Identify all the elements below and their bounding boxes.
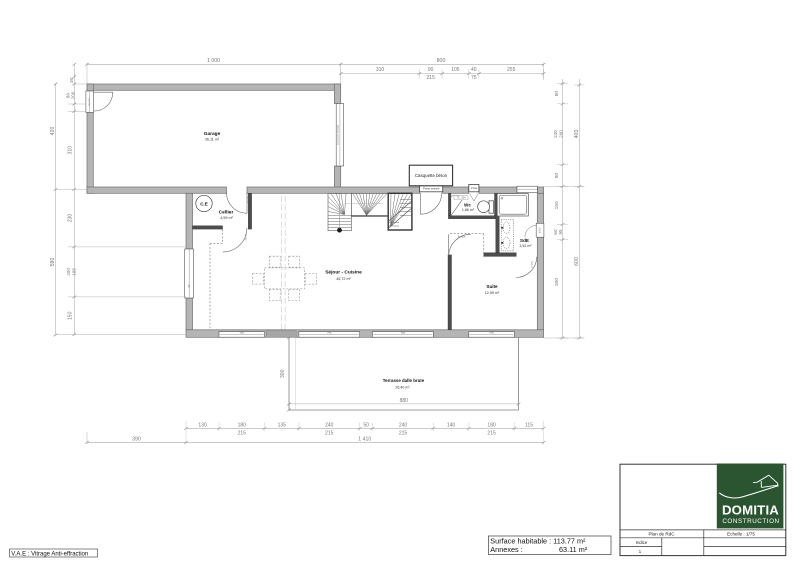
svg-text:600: 600 — [574, 257, 580, 266]
svg-text:140: 140 — [447, 422, 456, 428]
svg-text:Cellier: Cellier — [219, 210, 234, 216]
svg-text:310: 310 — [68, 146, 74, 155]
svg-text:105: 105 — [451, 67, 460, 73]
svg-text:Surface habitable : 113.77 m²: Surface habitable : 113.77 m² — [490, 536, 586, 545]
svg-text:80: 80 — [554, 91, 560, 97]
svg-text:Garage: Garage — [204, 131, 221, 137]
svg-text:V.A.E: V.A.E — [471, 186, 478, 190]
svg-text:45,72 m²: 45,72 m² — [336, 277, 351, 281]
svg-text:300: 300 — [280, 369, 286, 378]
svg-text:1,86 m²: 1,86 m² — [462, 208, 475, 212]
svg-text:12,59 m²: 12,59 m² — [485, 291, 500, 295]
svg-text:420: 420 — [50, 127, 56, 136]
svg-text:215: 215 — [238, 430, 247, 436]
svg-text:215: 215 — [487, 430, 496, 436]
svg-text:215: 215 — [325, 430, 334, 436]
svg-text:Terrasse dalle brute: Terrasse dalle brute — [383, 378, 425, 383]
svg-text:70 : 204: 70 : 204 — [456, 196, 466, 199]
svg-text:80x200: 80x200 — [89, 98, 91, 106]
svg-text:1 410: 1 410 — [358, 436, 371, 442]
svg-text:50: 50 — [363, 422, 369, 428]
svg-text:300: 300 — [554, 278, 560, 286]
svg-text:3,52 m²: 3,52 m² — [519, 244, 532, 248]
svg-text:Sectionnelle 240x200: Sectionnelle 240x200 — [337, 124, 340, 145]
svg-text:Annexes :: Annexes : — [490, 545, 522, 554]
svg-text:150: 150 — [554, 201, 560, 209]
svg-text:800: 800 — [437, 58, 446, 64]
svg-text:Suite: Suite — [486, 284, 498, 289]
svg-text:36,11 m²: 36,11 m² — [205, 138, 220, 142]
svg-text:1 000: 1 000 — [207, 58, 220, 64]
svg-text:180: 180 — [487, 422, 496, 428]
svg-text:Porte entrée: Porte entrée — [423, 186, 440, 190]
svg-text:SdE: SdE — [520, 238, 529, 243]
svg-text:VAE: VAE — [489, 332, 494, 335]
svg-text:30: 30 — [69, 77, 75, 83]
svg-text:215: 215 — [427, 75, 436, 81]
svg-text:80: 80 — [65, 93, 70, 99]
svg-text:VAE: VAE — [401, 332, 406, 335]
svg-text:580: 580 — [50, 258, 56, 267]
svg-text:255: 255 — [507, 67, 516, 73]
svg-text:75: 75 — [471, 75, 477, 81]
svg-text:880: 880 — [400, 398, 409, 404]
svg-text:VAE: VAE — [239, 332, 244, 335]
svg-text:4,59 m²: 4,59 m² — [220, 216, 234, 220]
svg-text:240: 240 — [325, 422, 334, 428]
svg-text:95: 95 — [558, 229, 563, 235]
svg-text:V.A.E: V.A.E — [538, 227, 541, 233]
svg-text:150: 150 — [68, 311, 74, 320]
svg-text:240: 240 — [399, 422, 408, 428]
svg-text:310: 310 — [376, 67, 385, 73]
svg-text:73 204: 73 204 — [531, 261, 533, 268]
svg-text:90: 90 — [428, 67, 434, 73]
svg-text:63.11 m²: 63.11 m² — [559, 545, 588, 554]
svg-text:DOMITIA: DOMITIA — [722, 503, 779, 518]
svg-text:Séjour - Cuisine: Séjour - Cuisine — [325, 270, 362, 276]
svg-text:4x 60x: 4x 60x — [458, 236, 466, 239]
svg-text:Casquette béton: Casquette béton — [415, 173, 448, 178]
svg-text:130: 130 — [198, 422, 207, 428]
svg-text:40: 40 — [471, 67, 477, 73]
svg-text:240: 240 — [553, 130, 558, 138]
svg-text:115: 115 — [525, 422, 533, 428]
svg-text:105: 105 — [71, 268, 76, 276]
svg-text:Plan de RdC: Plan de RdC — [648, 531, 675, 536]
svg-text:215: 215 — [399, 430, 408, 436]
svg-text:180: 180 — [238, 422, 247, 428]
svg-text:Echelle : 1/75: Echelle : 1/75 — [727, 531, 755, 536]
svg-text:135: 135 — [278, 422, 287, 428]
svg-text:CONSTRUCTION: CONSTRUCTION — [722, 518, 779, 525]
svg-text:230: 230 — [68, 214, 74, 223]
svg-text:400: 400 — [574, 130, 580, 139]
svg-text:200: 200 — [71, 91, 76, 99]
svg-text:V.A.E : Vitrage Anti-effractio: V.A.E : Vitrage Anti-effraction — [11, 551, 88, 557]
svg-text:26,40 m²: 26,40 m² — [395, 386, 410, 390]
svg-text:VAE: VAE — [327, 332, 332, 335]
svg-text:390: 390 — [132, 436, 141, 442]
svg-text:200: 200 — [559, 130, 564, 138]
svg-text:Indice: Indice — [636, 540, 648, 545]
svg-text:Wc: Wc — [464, 203, 471, 208]
svg-text:200: 200 — [66, 268, 71, 276]
svg-text:80 200: 80 200 — [245, 233, 247, 240]
svg-text:C.E: C.E — [200, 201, 208, 206]
svg-text:80 200: 80 200 — [248, 195, 250, 202]
svg-text:80: 80 — [554, 173, 560, 179]
